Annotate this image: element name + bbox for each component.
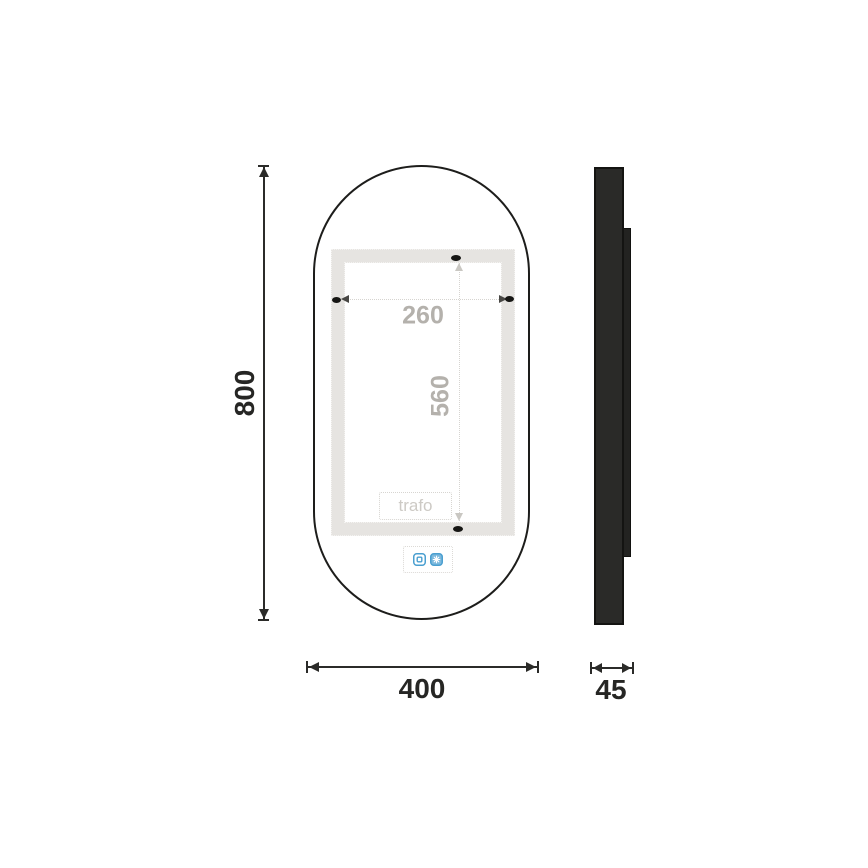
dim-800-tick-bottom [258, 619, 269, 621]
dim-45-tick-right [632, 662, 634, 674]
dim-45-label: 45 [595, 674, 626, 706]
dim-45-arrow-right [622, 663, 631, 673]
dim-45-tick-left [590, 662, 592, 674]
dim-800-line [263, 166, 265, 620]
dim-800-arrow-up [259, 167, 269, 177]
trafo-label: trafo [398, 496, 432, 516]
dim-400-tick-right [537, 661, 539, 673]
dim-400-label: 400 [399, 673, 446, 705]
dim-400-line [308, 666, 537, 668]
dim-560-arrow-down [455, 513, 463, 521]
mount-dot-right [505, 296, 514, 302]
dim-800-label: 800 [229, 370, 261, 417]
dim-45-arrow-left [593, 663, 602, 673]
dim-260-dotted-line [341, 299, 507, 300]
dim-800-arrow-down [259, 609, 269, 619]
trafo-box: trafo [379, 492, 452, 520]
dim-560-dotted-line [459, 263, 460, 521]
dim-260-arrow-left [341, 295, 349, 303]
dim-560-arrow-up [455, 263, 463, 271]
mount-dot-top [451, 255, 461, 261]
technical-drawing-canvas: 260 560 trafo [0, 0, 868, 868]
dim-400-arrow-left [309, 662, 319, 672]
dim-260-label: 260 [402, 302, 444, 331]
touch-sensor-icon [413, 553, 426, 566]
touch-controls-box [403, 546, 453, 573]
side-view-panel [594, 167, 624, 625]
dim-400-tick-left [306, 661, 308, 673]
anti-fog-icon [430, 553, 443, 566]
dim-560-label: 560 [427, 375, 456, 417]
mount-dot-bottom [453, 526, 463, 532]
dim-400-arrow-right [526, 662, 536, 672]
mount-dot-left [332, 297, 341, 303]
